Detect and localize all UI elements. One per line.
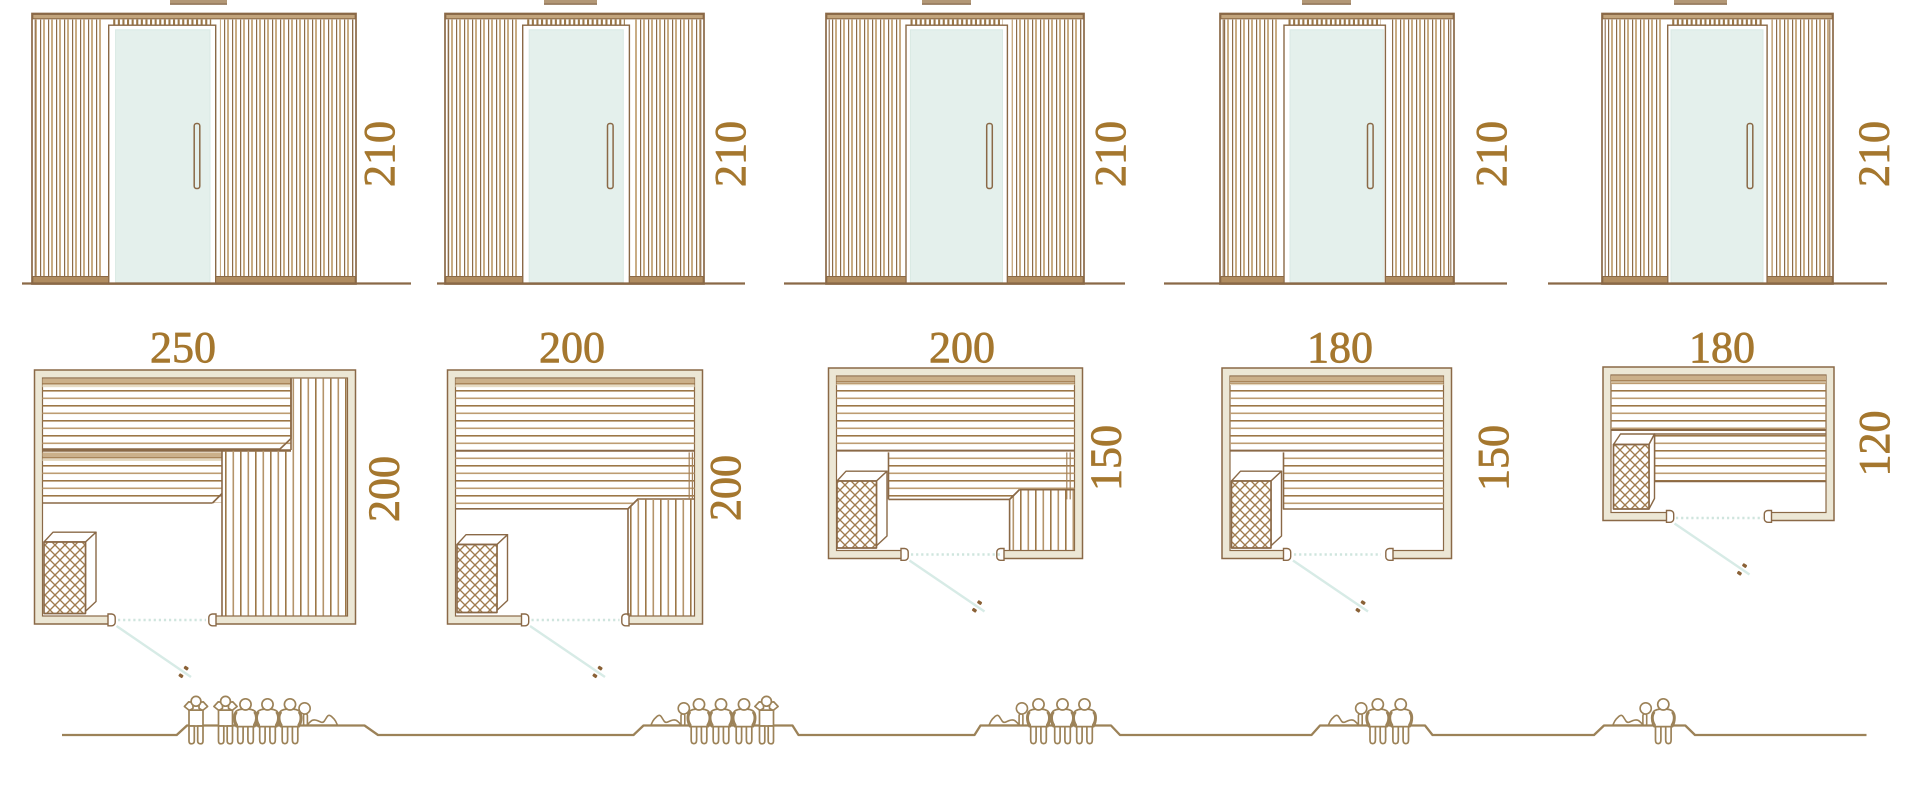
svg-text:210: 210 — [355, 121, 404, 187]
svg-text:200: 200 — [360, 456, 409, 522]
svg-text:250: 250 — [150, 323, 216, 372]
svg-text:210: 210 — [1850, 121, 1899, 187]
svg-text:180: 180 — [1307, 323, 1373, 372]
svg-text:210: 210 — [1467, 121, 1516, 187]
svg-text:180: 180 — [1689, 323, 1755, 372]
svg-text:200: 200 — [539, 323, 605, 372]
svg-text:200: 200 — [929, 323, 995, 372]
svg-text:210: 210 — [706, 121, 755, 187]
svg-text:120: 120 — [1850, 411, 1899, 477]
svg-text:200: 200 — [701, 455, 750, 521]
svg-text:150: 150 — [1469, 425, 1518, 491]
svg-text:150: 150 — [1082, 425, 1131, 491]
svg-text:210: 210 — [1086, 121, 1135, 187]
